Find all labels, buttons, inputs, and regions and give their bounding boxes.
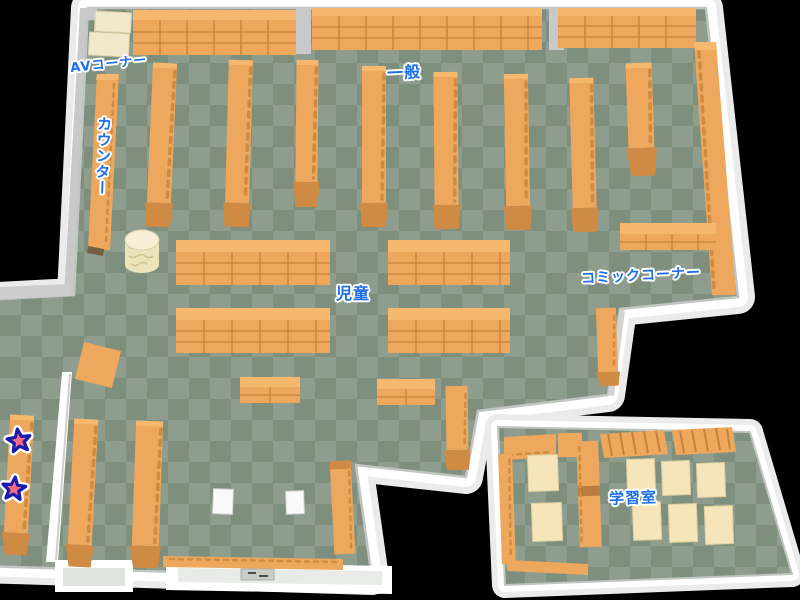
bookshelf-comic-corner — [620, 223, 716, 250]
label-study-room[interactable]: 学習室 — [609, 486, 658, 509]
door-mat — [241, 569, 274, 580]
bookshelf-top-wall — [133, 8, 696, 55]
label-children[interactable]: 児童 — [336, 280, 370, 304]
label-counter[interactable]: カウンター — [92, 116, 116, 197]
label-general[interactable]: 一般 — [386, 58, 421, 84]
white-box — [213, 489, 234, 515]
library-floor-map: AVコーナー カウンター 一般 児童 コミックコーナー 学習室 — [0, 0, 800, 600]
study-room-divider-shelf — [576, 441, 602, 548]
floor-map-canvas — [0, 0, 800, 600]
display-cylinder — [125, 230, 159, 273]
wall-pillar — [296, 8, 311, 54]
white-box — [286, 491, 305, 515]
